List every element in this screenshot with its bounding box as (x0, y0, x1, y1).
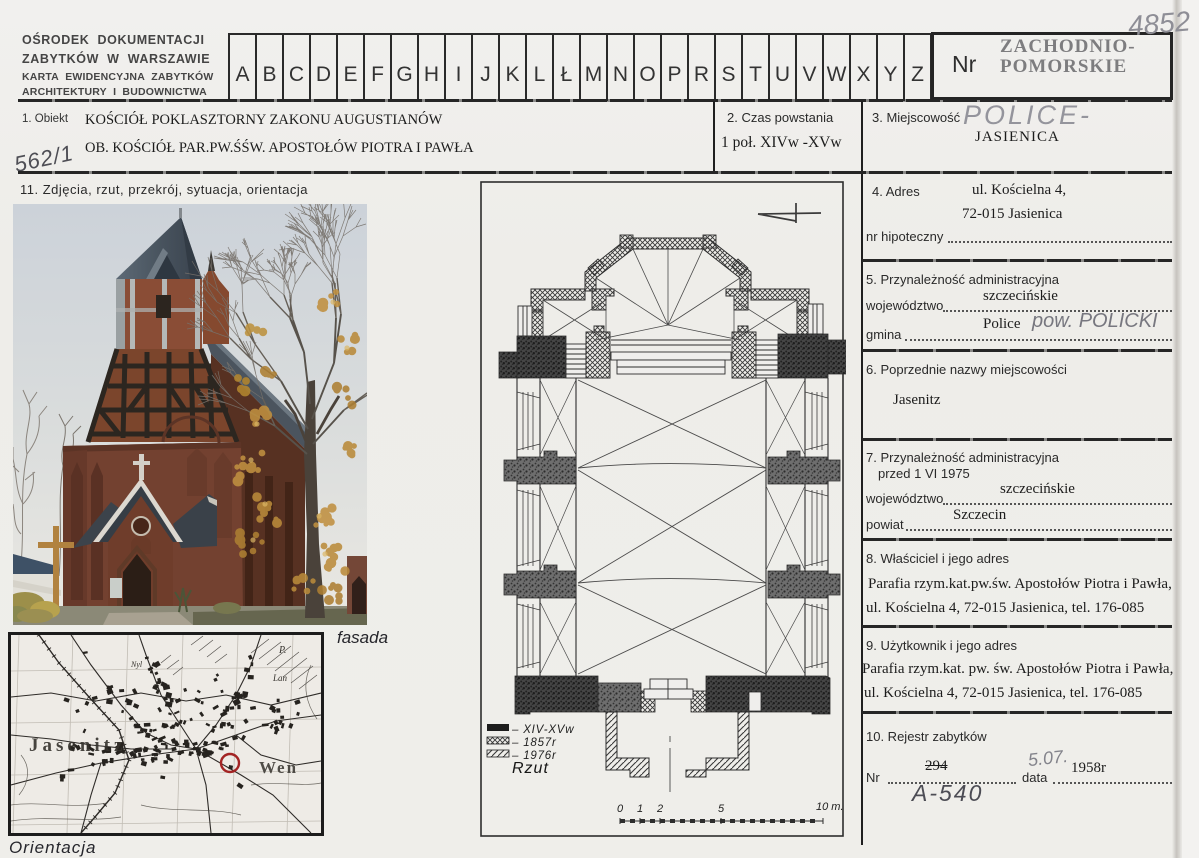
svg-text:Wen: Wen (259, 758, 298, 777)
svg-text:1: 1 (637, 803, 643, 815)
svg-text:Lan: Lan (272, 673, 288, 683)
svg-text:0: 0 (617, 803, 624, 815)
svg-text:Jasenitz: Jasenitz (29, 735, 126, 756)
svg-text:Rzut: Rzut (512, 760, 549, 777)
svg-text:– XIV-XVw: – XIV-XVw (511, 724, 574, 736)
svg-text:– 1857r: – 1857r (511, 737, 557, 749)
svg-text:5: 5 (718, 803, 725, 815)
svg-text:2: 2 (656, 803, 663, 815)
svg-text:P.: P. (278, 645, 286, 656)
svg-text:Nyl: Nyl (130, 660, 143, 669)
svg-text:10 m.: 10 m. (816, 801, 844, 813)
